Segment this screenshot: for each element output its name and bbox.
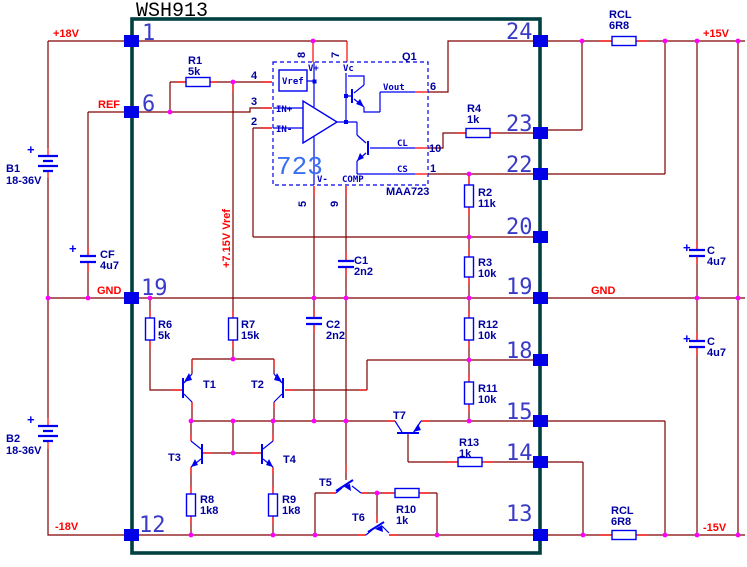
r7-value: 15k: [241, 330, 260, 342]
pin-number-19-left: 19: [141, 276, 168, 301]
r6-value: 5k: [158, 330, 171, 342]
pin-square-20: [533, 231, 548, 243]
r1-value: 5k: [188, 66, 201, 78]
r4-body: [466, 129, 490, 138]
rcl-top-body: [612, 37, 636, 46]
net-ref: REF: [98, 99, 120, 111]
pin-square-1: [124, 35, 139, 47]
pin-number-14: 14: [506, 441, 533, 466]
background: [0, 0, 747, 567]
c-bottom-value: 4u7: [707, 347, 726, 359]
ic-pin7-number: 7: [330, 52, 342, 58]
b2-name: B2: [6, 433, 20, 445]
cf-plus-sign: +: [69, 241, 77, 256]
pin-number-1: 1: [142, 21, 155, 46]
pin-number-19-right: 19: [506, 275, 533, 300]
pin-square-12: [124, 529, 139, 541]
net-minus18: -18V: [55, 521, 79, 533]
b1-name: B1: [6, 163, 20, 175]
pin-square-24: [533, 35, 548, 47]
c1-value: 2n2: [354, 266, 373, 278]
ic-cs-label: CS: [397, 165, 408, 175]
ic-pin1-number: 1: [430, 163, 436, 175]
r9-body: [269, 494, 278, 516]
pin-number-20: 20: [506, 215, 533, 240]
r1-body: [186, 78, 210, 87]
r3-body: [465, 257, 474, 277]
r8-body: [187, 494, 196, 516]
r12-body: [465, 318, 474, 340]
t6-label: T6: [352, 512, 365, 524]
r10-body: [395, 489, 419, 498]
r7-body: [229, 318, 238, 340]
ic-cl-label: CL: [397, 139, 408, 149]
ic-pin8-number: 8: [296, 52, 308, 58]
c2-value: 2n2: [326, 330, 345, 342]
ic-part-number: MAA723: [386, 186, 429, 198]
pin-number-24: 24: [506, 20, 533, 45]
r2-value: 11k: [478, 198, 497, 210]
t2-label: T2: [251, 379, 264, 391]
t5-label: T5: [319, 477, 332, 489]
b1-value: 18-36V: [6, 175, 42, 187]
cf-value: 4u7: [100, 260, 119, 272]
pin-square-23: [533, 127, 548, 139]
pin-number-13: 13: [506, 502, 533, 527]
b1-plus-sign: +: [27, 142, 35, 157]
t1-label: T1: [203, 379, 216, 391]
pin-square-22: [533, 168, 548, 180]
c-top-value: 4u7: [707, 256, 726, 268]
r6-body: [146, 318, 155, 340]
pin-number-23: 23: [506, 112, 533, 137]
r11-body: [465, 382, 474, 404]
module-title: WSH913: [136, 0, 208, 23]
r9-value: 1k8: [282, 505, 300, 517]
pin-square-6: [124, 106, 139, 118]
pin-square-19-right: [533, 292, 548, 304]
pin-square-13: [533, 529, 548, 541]
t4-label: T4: [283, 454, 297, 466]
rcl-bottom-value: 6R8: [611, 516, 631, 528]
ic-vout-label: Vout: [383, 83, 405, 93]
ic-pin10-number: 10: [429, 143, 441, 155]
pin-square-19-left: [124, 292, 139, 304]
ic-vc-label: Vc: [343, 64, 354, 74]
ic-pin6-number: 6: [430, 81, 436, 93]
ic-junction-1: [313, 80, 317, 84]
pin-number-22: 22: [506, 153, 533, 178]
pin-number-18: 18: [506, 339, 533, 364]
c-bottom-plus-sign: +: [683, 331, 691, 346]
r3-value: 10k: [478, 268, 497, 280]
net-vref-rail: +7.15V Vref: [221, 209, 233, 268]
ic-vplus-label: V+: [308, 64, 319, 74]
r8-value: 1k8: [200, 505, 218, 517]
c-top-plus-sign: +: [683, 240, 691, 255]
rcl-bottom-body: [612, 531, 636, 540]
rcl-top-value: 6R8: [609, 20, 629, 32]
net-plus18: +18V: [53, 28, 80, 40]
ic-pin5-number: 5: [297, 201, 309, 207]
net-plus15: +15V: [703, 28, 730, 40]
r13-value: 1k: [459, 448, 472, 460]
ic-pin3-number: 3: [251, 96, 257, 108]
pin-square-15: [533, 415, 548, 427]
r4-value: 1k: [467, 114, 480, 126]
ic-big-label: 723: [276, 152, 323, 182]
net-minus15: -15V: [703, 522, 727, 534]
ic-pin9-number: 9: [329, 201, 341, 207]
q1-label: Q1: [402, 51, 417, 63]
ic-junction-2: [344, 94, 348, 98]
net-gnd-left: GND: [97, 285, 122, 297]
r11-value: 10k: [478, 394, 497, 406]
ic-pin2-number: 2: [251, 116, 257, 128]
pin-number-12: 12: [139, 513, 166, 538]
schematic-canvas: WSH913: [0, 0, 747, 567]
ic-pin4-number: 4: [251, 70, 258, 82]
pin-square-18: [533, 354, 548, 366]
ic-comp-label: COMP: [342, 175, 364, 185]
t7-label: T7: [393, 410, 406, 422]
vref-box-label: Vref: [282, 77, 304, 87]
r10-value: 1k: [396, 515, 409, 527]
schematic-svg: WSH913: [0, 0, 747, 567]
pin-square-14: [533, 456, 548, 468]
r12-value: 10k: [478, 330, 497, 342]
ic-inplus-label: IN+: [276, 105, 293, 115]
net-gnd-right: GND: [591, 285, 616, 297]
ic-vminus-label: V-: [317, 175, 328, 185]
b2-plus-sign: +: [27, 412, 35, 427]
pin-number-15: 15: [506, 400, 533, 425]
r2-body: [465, 185, 474, 207]
ic-inminus-label: IN-: [276, 125, 292, 135]
t3-label: T3: [168, 452, 181, 464]
ic-junction-3: [344, 120, 348, 124]
pin-number-6: 6: [142, 92, 155, 117]
b2-value: 18-36V: [6, 445, 42, 457]
